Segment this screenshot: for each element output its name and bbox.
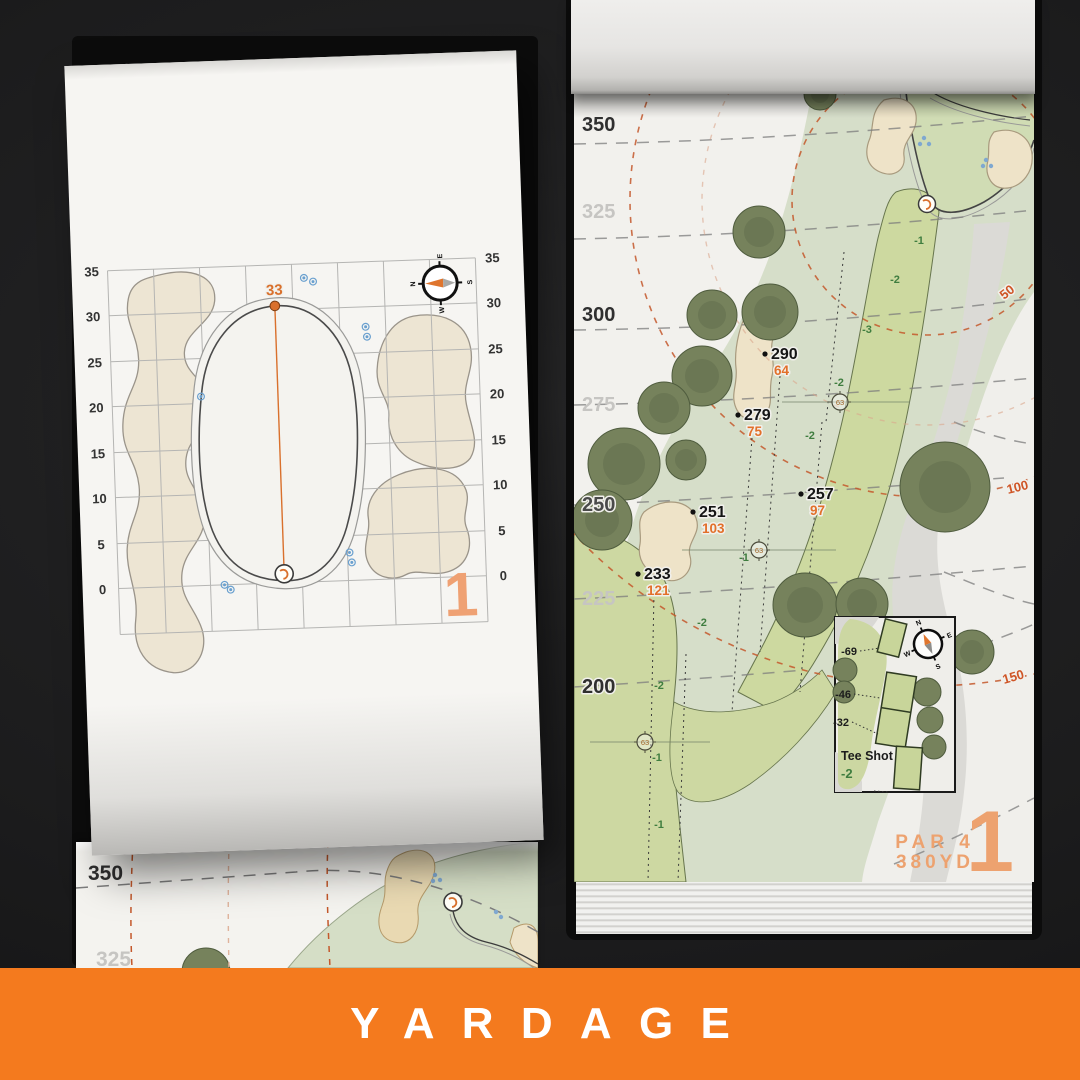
axis-label: 0	[99, 582, 107, 597]
carry-from-tee: 64	[774, 363, 790, 378]
distance-tick: 275	[582, 394, 615, 416]
hole-map-page: 50 100 150	[574, 92, 1034, 882]
carry-to-green: 290	[771, 346, 798, 363]
sprinkler-number: 63	[836, 398, 844, 407]
back-page-flag-icon	[444, 893, 462, 911]
compass-s: S	[467, 279, 474, 284]
back-page-map: 350 325	[76, 842, 538, 968]
carry-from-tee: 97	[810, 503, 825, 518]
axis-label: 10	[493, 477, 508, 492]
axis-label: 20	[89, 400, 104, 415]
page-fold-shadow	[87, 690, 544, 856]
green-detail-page: 35 30 25 20 15 10 5 0 35 30 25 20 15 10 …	[64, 50, 543, 855]
tee-shot-title: Tee Shot	[841, 749, 894, 763]
axis-label: 35	[485, 250, 500, 265]
sprinkler-number: 63	[641, 738, 649, 747]
slope-label: -1	[652, 752, 662, 764]
back-page-terrain	[182, 842, 538, 968]
yardage-banner: YARDAGE	[0, 968, 1080, 1080]
back-distance-325: 325	[96, 948, 131, 968]
slope-label: -2	[697, 617, 707, 629]
axis-label: 15	[90, 446, 105, 461]
carry-to-green: 279	[744, 407, 771, 424]
carry-from-tee: 121	[647, 583, 670, 598]
slope-label: -2	[654, 680, 664, 692]
tree-icon	[182, 948, 230, 968]
sprinkler-icon	[227, 586, 234, 593]
tree-icon	[666, 440, 706, 480]
flag-icon	[275, 564, 294, 583]
tee-yardage: -69	[841, 646, 857, 658]
slope-label: -3	[862, 324, 872, 336]
carry-from-tee: 103	[702, 521, 725, 536]
carry-to-green: 233	[644, 566, 671, 583]
tree-icon	[773, 573, 837, 637]
left-booklet-next-page: 350 325	[76, 842, 538, 968]
slope-label: -1	[739, 552, 749, 564]
axis-label: 25	[87, 355, 102, 370]
axis-label: 10	[92, 491, 107, 506]
slope-label: -2	[805, 430, 815, 442]
tee-shot-inset: -69 -46 -32 Tee Shot -2	[833, 610, 963, 792]
carry-from-tee: 75	[747, 424, 763, 439]
carry-to-green: 251	[699, 504, 726, 521]
axis-label: 0	[500, 568, 508, 583]
sprinkler-icon	[310, 278, 317, 285]
distance-tick: 300	[582, 304, 615, 326]
pin-dot	[270, 301, 280, 311]
back-distance-350: 350	[88, 862, 123, 885]
right-booklet: 50 100 150	[566, 0, 1042, 940]
tree-icon	[638, 382, 690, 434]
flag-icon	[919, 196, 936, 213]
distance-tick: 325	[582, 201, 615, 223]
tree-icon	[733, 206, 785, 258]
hole-number: 1	[966, 794, 1014, 882]
slope-label: -1	[914, 235, 924, 247]
par-label: PAR 4	[895, 832, 975, 853]
distance-tick: 250	[582, 494, 615, 516]
axis-label: 5	[498, 523, 506, 538]
distance-tick: 200	[582, 676, 615, 698]
compass-n: N	[410, 281, 417, 286]
tree-icon	[900, 442, 990, 532]
axis-label: 25	[488, 341, 503, 356]
sprinkler-number: 63	[755, 546, 763, 555]
putting-green-outline	[186, 295, 371, 592]
banner-title: YARDAGE	[350, 999, 757, 1049]
total-yardage-label: 380YD	[896, 852, 974, 873]
distance-tick: 225	[582, 588, 615, 610]
axis-label: 30	[486, 295, 501, 310]
page-top-shadow	[574, 92, 1034, 118]
tree-icon	[687, 290, 737, 340]
flipped-page	[571, 0, 1035, 94]
tree-icon	[742, 284, 798, 340]
sprinkler-icon	[300, 274, 307, 281]
compass-e: E	[437, 253, 444, 258]
tee-shot-slope: -2	[841, 766, 853, 781]
slope-label: -1	[654, 819, 664, 831]
sprinkler-icon	[362, 323, 369, 330]
pin-depth-label: 33	[266, 282, 283, 300]
tree-icon	[588, 428, 660, 500]
axis-label: 35	[84, 264, 99, 279]
slope-label: -2	[834, 377, 844, 389]
yardage-book-mockup: 350 325	[0, 0, 1080, 1080]
page-stack-edges	[576, 880, 1032, 937]
carry-to-green: 257	[807, 486, 834, 503]
sprinkler-icon	[363, 333, 370, 340]
hole-number: 1	[443, 560, 480, 630]
axis-label: 20	[490, 386, 505, 401]
sprinkler-icon	[348, 559, 355, 566]
axis-label: 5	[97, 537, 105, 552]
hole-map: 50 100 150	[574, 92, 1034, 882]
left-booklet: 350 325	[72, 36, 538, 968]
tee-yardage: -32	[833, 717, 849, 729]
tee-yardage: -46	[835, 689, 851, 701]
tree-icon	[950, 630, 994, 674]
axis-label: 15	[491, 432, 506, 447]
axis-label: 30	[86, 309, 101, 324]
slope-label: -2	[890, 274, 900, 286]
compass-w: W	[439, 306, 446, 313]
